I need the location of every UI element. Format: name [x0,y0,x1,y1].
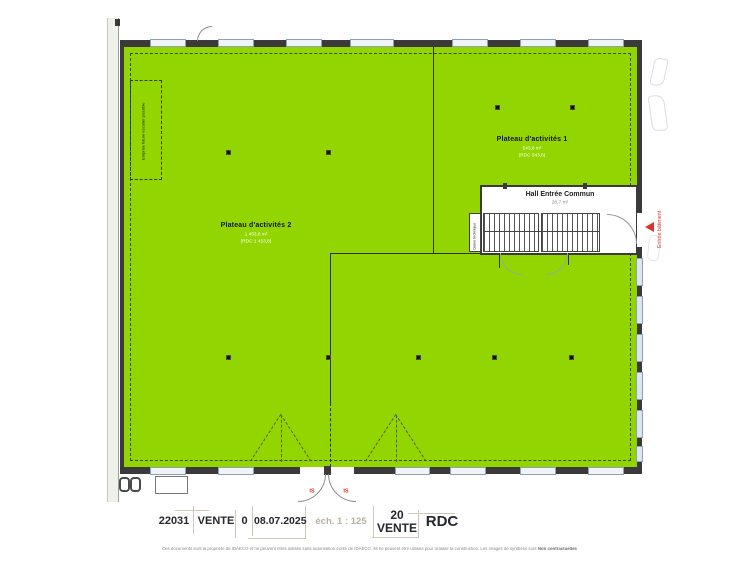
titleblock-separator [373,506,374,538]
future-stair-label: Emprise future escalier possible [141,94,145,168]
window [218,467,254,475]
window [150,467,186,475]
plateau2-title: Plateau d'activités 2 [194,222,318,229]
exterior-bollard [119,477,130,492]
exit-label-right: IS [338,487,355,493]
stair-flight-upper [541,213,600,252]
plateau2-note: (RDC 1 453,8) [214,239,298,244]
titleblock: 22031 VENTE 0 08.07.2025 éch. 1 : 125 20… [150,504,480,540]
window [636,372,643,400]
separation-line-vertical-lower [330,253,331,403]
window [636,410,643,438]
technical-duct: Gaine technique [469,213,481,252]
window [150,39,186,47]
window [520,467,556,475]
column-marker [326,355,331,360]
window [588,39,624,47]
door-swing-top [197,26,212,41]
plateau1-area: 543,8 m² [490,146,574,151]
titleblock-separator [252,506,253,536]
window [450,467,486,475]
window [452,39,488,47]
disclaimer-text: Ces documents sont la propriété de IDAEC… [162,547,538,551]
titleblock-tick [372,537,418,538]
level-label: RDC [420,513,464,530]
exterior-sketch [647,234,662,261]
stair-exit-tick [568,253,569,265]
stair-guide-line [483,231,600,232]
window [520,39,556,47]
lot-number: 20 [376,508,418,522]
exterior-sketch [648,94,669,132]
window [395,467,430,475]
titleblock-separator [418,510,419,538]
floor-plan-page: Emprise future escalier possible Plateau… [0,0,753,565]
sectional-door-mark-left-c [281,415,283,462]
project-number: 22031 [155,515,193,527]
titleblock-tick [248,538,306,539]
date-label: 08.07.2025 [254,515,305,527]
scale-label: éch. 1 : 125 [310,516,372,527]
plateau2-area: 1 453,8 m² [214,232,298,237]
column-marker [326,150,331,155]
wall-bottom [120,467,642,474]
column-marker [492,355,497,360]
separation-line-vertical-upper [433,47,434,253]
window [350,39,394,47]
plateau1-title: Plateau d'activités 1 [470,136,594,143]
window [636,296,643,324]
index-label: 0 [238,515,251,527]
exterior-pad [155,476,188,494]
adjacent-strip-mark [115,19,120,26]
window [636,446,643,462]
entrance-arrow-icon [645,222,654,232]
separation-line-horizontal [330,253,481,254]
phase-label: VENTE [197,515,235,527]
column-marker [416,355,421,360]
wall-left [120,40,124,474]
column-marker [569,355,574,360]
future-stair-reservation: Emprise future escalier possible [130,80,162,180]
technical-duct-label: Gaine technique [473,216,477,249]
entrance-opening [637,213,642,247]
wall-right [637,40,642,474]
hall-wall-tick [583,183,587,189]
window [636,334,643,362]
hall-wall-tick [503,183,507,189]
disclaimer-bold: Non contractuelles [538,547,577,551]
separation-line-dashed [330,403,332,467]
lot-phase: VENTE [376,521,418,535]
adjacent-building-strip [107,18,119,502]
titleblock-separator [235,510,236,538]
exit-label-left: IS [304,487,321,493]
hall-area: 28,7 m² [511,200,609,205]
plateau1-note: (RDC 543,8) [490,153,574,158]
column-marker [570,105,575,110]
titleblock-tick [175,510,209,511]
sectional-door-mark-right-c [396,415,398,462]
exterior-sketch [649,57,669,87]
column-marker [226,150,231,155]
hall-title: Hall Entrée Commun [490,191,630,198]
exterior-bollard [130,477,141,492]
window [588,467,624,475]
column-marker [495,105,500,110]
window [286,39,322,47]
disclaimer: Ces documents sont la propriété de IDAEC… [162,547,602,551]
window [218,39,254,47]
column-marker [226,355,231,360]
stair-flight-lower [483,213,539,252]
window [636,258,643,286]
